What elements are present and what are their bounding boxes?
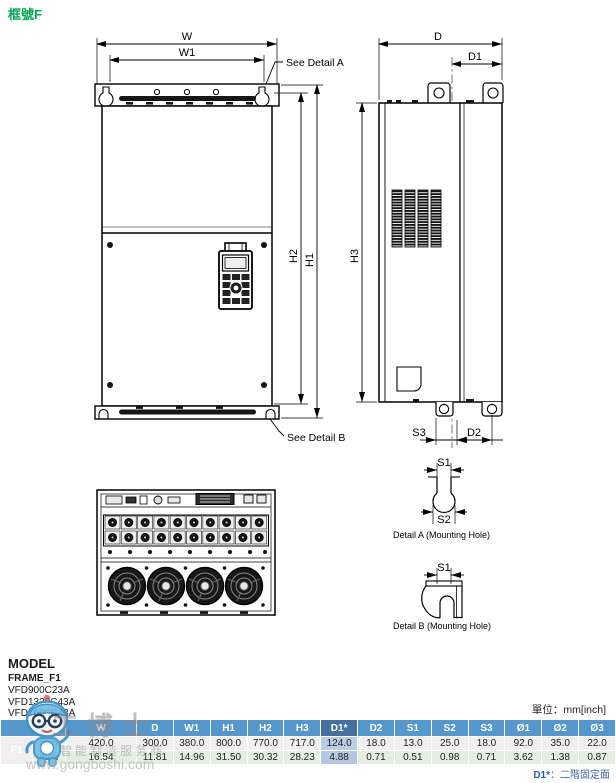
value-cell: 1.38 [542, 751, 579, 765]
value-cell: 0.87 [579, 751, 616, 765]
manual-page: 框號F [0, 0, 616, 783]
col-header-h1: H1 [210, 720, 247, 737]
col-header-frame [1, 720, 66, 737]
dim-label-d1: D1 [468, 51, 482, 63]
frame-cell: F1 [1, 737, 33, 765]
side-view: D D1 H3 [349, 31, 503, 448]
col-header-dia2: Ø2 [542, 720, 579, 737]
see-detail-a-label: See Detail A [286, 57, 344, 69]
col-header-s2: S2 [431, 720, 468, 737]
value-cell: 770.0 [247, 737, 284, 751]
detail-a-caption: Detail A (Mounting Hole) [393, 530, 490, 540]
model-name: VFD1320C43A [8, 697, 75, 709]
value-cell: 0.98 [431, 751, 468, 765]
unit-cell: inch [33, 751, 66, 765]
value-cell: 18.0 [358, 737, 395, 751]
col-header-d1-star: D1* [321, 720, 358, 737]
detail-b-caption: Detail B (Mounting Hole) [393, 621, 491, 631]
detail-b: S1 Detail B (Mounting Hole) [393, 562, 491, 631]
detail-a: S1 S2 Detail A (Mounting Hole) [393, 457, 490, 540]
dim-label-h3: H3 [349, 249, 361, 263]
dim-label-h2: H2 [288, 249, 300, 263]
model-block: MODEL FRAME_F1 VFD900C23A VFD1320C43A VF… [8, 656, 75, 720]
value-cell: 380.0 [173, 737, 210, 751]
dimension-table: WDW1H1H2H3D1*D2S1S2S3Ø1Ø2Ø3F1mm420.0300.… [0, 719, 616, 765]
dim-label-d: D [434, 31, 442, 43]
footnote-text: ：二階固定面 [550, 770, 610, 781]
model-name: VFD900C23A [8, 685, 75, 697]
dim-label-w1: W1 [179, 47, 196, 59]
bottom-view [97, 490, 275, 615]
value-cell: 4.88 [321, 751, 358, 765]
value-cell: 0.51 [394, 751, 431, 765]
unit-cell: mm [33, 737, 66, 751]
detail-a-s1-label: S1 [437, 457, 450, 469]
see-detail-b-label: See Detail B [287, 432, 345, 444]
value-cell: 420.0 [66, 737, 137, 751]
value-cell: 11.81 [137, 751, 174, 765]
dimension-drawing: W W1 See Detail A [0, 16, 616, 666]
unit-note: 單位：mm[inch] [532, 702, 606, 717]
front-view: W W1 See Detail A [95, 31, 345, 444]
dim-label-s3: S3 [412, 427, 425, 439]
footnote-label: D1* [533, 770, 550, 781]
value-cell: 0.71 [468, 751, 505, 765]
value-cell: 124.0 [321, 737, 358, 751]
detail-b-s1-label: S1 [437, 562, 450, 574]
col-header-h3: H3 [284, 720, 321, 737]
value-cell: 28.23 [284, 751, 321, 765]
value-cell: 35.0 [542, 737, 579, 751]
footnote: D1*：二階固定面 [533, 766, 610, 781]
value-cell: 14.96 [173, 751, 210, 765]
dim-label-h1: H1 [304, 253, 316, 267]
value-cell: 30.32 [247, 751, 284, 765]
value-cell: 31.50 [210, 751, 247, 765]
table-row-mm: F1mm420.0300.0380.0800.0770.0717.0124.01… [1, 737, 616, 751]
col-header-d2: D2 [358, 720, 395, 737]
col-header-d: D [137, 720, 174, 737]
col-header-w1: W1 [173, 720, 210, 737]
value-cell: 16.54 [66, 751, 137, 765]
value-cell: 800.0 [210, 737, 247, 751]
detail-a-s2-label: S2 [437, 514, 450, 526]
model-name: VFD1600C43A [8, 708, 75, 720]
value-cell: 717.0 [284, 737, 321, 751]
value-cell: 92.0 [505, 737, 542, 751]
keypad [219, 243, 252, 309]
table-row-inch: inch16.5411.8114.9631.5030.3228.234.880.… [1, 751, 616, 765]
value-cell: 22.0 [579, 737, 616, 751]
dim-label-d2: D2 [467, 427, 481, 439]
value-cell: 18.0 [468, 737, 505, 751]
col-header-dia3: Ø3 [579, 720, 616, 737]
value-cell: 25.0 [431, 737, 468, 751]
col-header-w: W [66, 720, 137, 737]
col-header-dia1: Ø1 [505, 720, 542, 737]
value-cell: 300.0 [137, 737, 174, 751]
col-header-s1: S1 [394, 720, 431, 737]
frame-name: FRAME_F1 [8, 673, 75, 684]
dim-label-w: W [182, 31, 193, 43]
value-cell: 3.62 [505, 751, 542, 765]
col-header-h2: H2 [247, 720, 284, 737]
value-cell: 13.0 [394, 737, 431, 751]
value-cell: 0.71 [358, 751, 395, 765]
col-header-s3: S3 [468, 720, 505, 737]
model-heading: MODEL [8, 656, 75, 671]
